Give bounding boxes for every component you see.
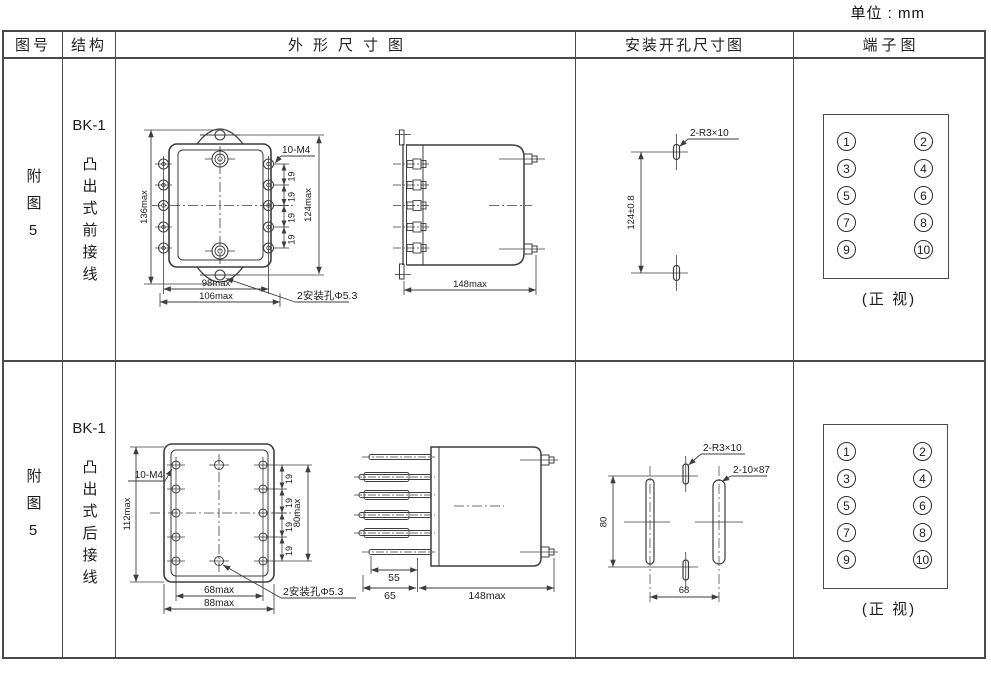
outline-drawing-row2-front-and-side-view: 10-M4 112max 19 19 19 19 80max 68max 88m… — [116, 362, 576, 659]
terminal-1: 1 — [837, 132, 856, 151]
dim-pitch-label-4: 19 — [287, 234, 297, 244]
rear-studs — [520, 455, 558, 557]
outline-cell-row1: 136max 19 19 19 19 124max 10-M4 98max 10… — [116, 59, 576, 362]
dim-height-total-label: 136max — [139, 190, 150, 224]
terminal-diagram-row2: 12 34 56 78 910 — [823, 424, 948, 589]
structure-cell-row2: BK-1 凸出式后接线 — [63, 362, 116, 657]
dim-pitch-label-1: 19 — [284, 474, 294, 484]
terminal-7: 7 — [837, 213, 856, 232]
terminal-9: 9 — [837, 550, 856, 569]
side-view — [354, 447, 558, 592]
terminal-caption-row1: (正 视) — [794, 288, 984, 309]
rear-studs — [499, 154, 545, 254]
dim-hole-spacing-v-label: 80 — [599, 517, 610, 528]
slot-note-label: 2-R3×10 — [703, 443, 742, 454]
terminal-1: 1 — [837, 442, 856, 461]
fig-no-row1: 附图5 — [23, 168, 44, 251]
dim-width-total-label: 106max — [199, 291, 233, 302]
terminal-4: 4 — [914, 159, 933, 178]
dim-height-total-label: 112max — [122, 497, 133, 530]
terminal-2: 2 — [914, 132, 933, 151]
slot-note-label: 2-R3×10 — [690, 128, 729, 139]
terminal-9: 9 — [837, 240, 856, 259]
terminal-4: 4 — [913, 469, 932, 488]
units-label: 单位 : mm — [851, 2, 926, 23]
header-fig-no: 图号 — [4, 32, 63, 59]
mounting-hole-drawing-row1: 124±0.8 2-R3×10 — [576, 59, 794, 362]
terminal-5: 5 — [837, 186, 856, 205]
dim-pin-len2-label: 65 — [384, 590, 396, 602]
dim-depth-label: 148max — [468, 590, 506, 602]
mount-hole-note-label: 2安装孔Φ5.3 — [283, 585, 343, 598]
dim-height-terminals-label: 80max — [292, 498, 303, 527]
slot-note2-label: 2-10×87 — [733, 465, 770, 476]
mounting-cell-row1: 124±0.8 2-R3×10 — [576, 59, 794, 362]
terminal-5: 5 — [837, 496, 856, 515]
terminal-8: 8 — [913, 523, 932, 542]
fig-no-cell-row2: 附图5 — [4, 362, 63, 657]
fig-no-row2: 附图5 — [23, 468, 44, 551]
dim-pitch-label-4: 19 — [284, 546, 294, 556]
header-mounting: 安装开孔尺寸图 — [576, 32, 794, 59]
terminal-cell-row2: 12 34 56 78 910 (正 视) — [794, 362, 984, 657]
thread-note-label: 10-M4 — [135, 470, 164, 481]
drawing-sheet: 单位 : mm 图号 结构 外形尺寸图 安装开孔尺寸图 端子图 附图5 BK-1… — [0, 0, 991, 673]
terminal-8: 8 — [914, 213, 933, 232]
terminal-6: 6 — [913, 496, 932, 515]
dim-depth-label: 148max — [453, 279, 487, 290]
terminal-3: 3 — [837, 469, 856, 488]
mounting-hole-drawing-row2: 80 68 2-R3×10 2-10×87 — [576, 362, 794, 659]
dim-pitch-label-1: 19 — [287, 171, 297, 181]
outline-drawing-row1-front-and-side-view: 136max 19 19 19 19 124max 10-M4 98max 10… — [116, 59, 576, 362]
mount-hole-note-label: 2安装孔Φ5.3 — [297, 289, 357, 302]
dim-pin-len1-label: 55 — [388, 572, 400, 584]
structure-cell-row1: BK-1 凸出式前接线 — [63, 59, 116, 362]
terminal-7: 7 — [837, 523, 856, 542]
right-terminals — [264, 156, 274, 256]
terminal-10: 10 — [913, 550, 932, 569]
dim-width-terminals-label: 68max — [204, 585, 234, 596]
model-label-row2: BK-1 — [72, 420, 105, 437]
terminal-10: 10 — [914, 240, 933, 259]
dim-hole-spacing-label: 124±0.8 — [626, 195, 637, 229]
dim-height-mount-label: 124max — [303, 188, 314, 222]
terminal-studs — [393, 159, 429, 253]
terminal-caption-row2: (正 视) — [794, 598, 984, 619]
model-label-row1: BK-1 — [72, 117, 105, 134]
terminal-6: 6 — [914, 186, 933, 205]
fig-no-cell-row1: 附图5 — [4, 59, 63, 362]
dim-pitch-label-2: 19 — [287, 192, 297, 202]
header-structure: 结构 — [63, 32, 116, 59]
drawing-table: 图号 结构 外形尺寸图 安装开孔尺寸图 端子图 附图5 BK-1 凸出式前接线 — [2, 30, 986, 659]
structure-label-row1: 凸出式前接线 — [79, 156, 100, 288]
dim-pitch-label-3: 19 — [287, 213, 297, 223]
structure-label-row2: 凸出式后接线 — [79, 459, 100, 591]
terminal-pins — [354, 455, 435, 555]
front-view — [144, 129, 349, 307]
dim-width-total-label: 88max — [204, 598, 234, 609]
dim-hole-spacing-h-label: 68 — [679, 585, 690, 596]
header-outline: 外形尺寸图 — [116, 32, 576, 59]
terminal-cell-row1: 12 34 56 78 910 (正 视) — [794, 59, 984, 362]
terminal-3: 3 — [837, 159, 856, 178]
terminal-2: 2 — [913, 442, 932, 461]
terminal-diagram-row1: 12 34 56 78 910 — [823, 114, 949, 279]
side-view — [393, 130, 545, 295]
outline-cell-row2: 10-M4 112max 19 19 19 19 80max 68max 88m… — [116, 362, 576, 657]
mounting-cell-row2: 80 68 2-R3×10 2-10×87 — [576, 362, 794, 657]
thread-note-label: 10-M4 — [282, 145, 311, 156]
header-terminal: 端子图 — [794, 32, 984, 59]
dim-width-terminals-label: 98max — [202, 278, 231, 289]
